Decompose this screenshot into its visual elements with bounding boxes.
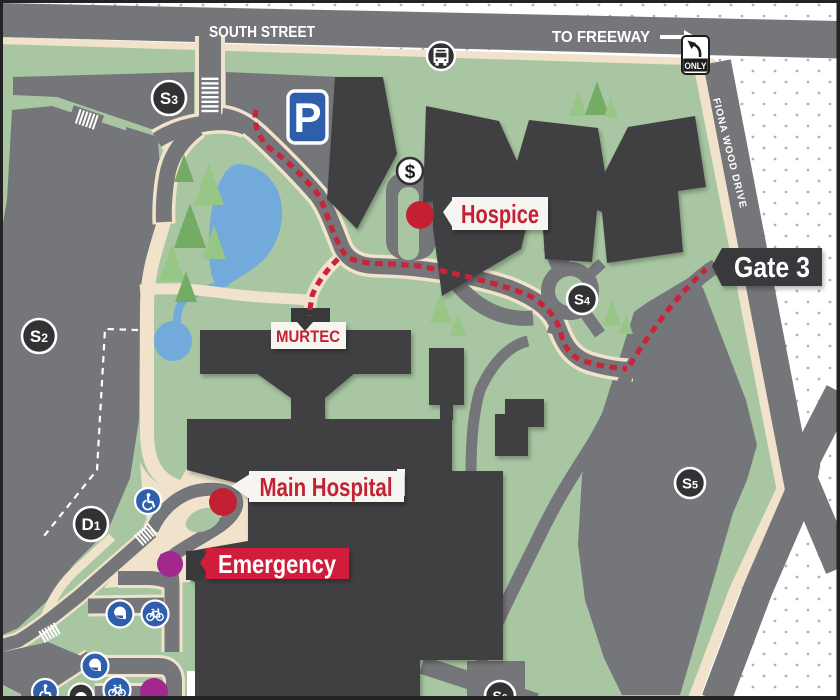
svg-text:Main Hospital: Main Hospital — [260, 472, 393, 502]
svg-text:P: P — [293, 94, 321, 141]
svg-text:Emergency: Emergency — [218, 549, 336, 579]
svg-text:ONLY: ONLY — [685, 61, 708, 72]
svg-text:MURTEC: MURTEC — [276, 327, 340, 346]
svg-text:SOUTH STREET: SOUTH STREET — [209, 24, 315, 41]
svg-text:Gate 3: Gate 3 — [734, 252, 810, 284]
svg-text:TO FREEWAY: TO FREEWAY — [552, 29, 650, 46]
svg-text:Hospice: Hospice — [461, 199, 539, 229]
svg-text:$: $ — [405, 162, 416, 183]
